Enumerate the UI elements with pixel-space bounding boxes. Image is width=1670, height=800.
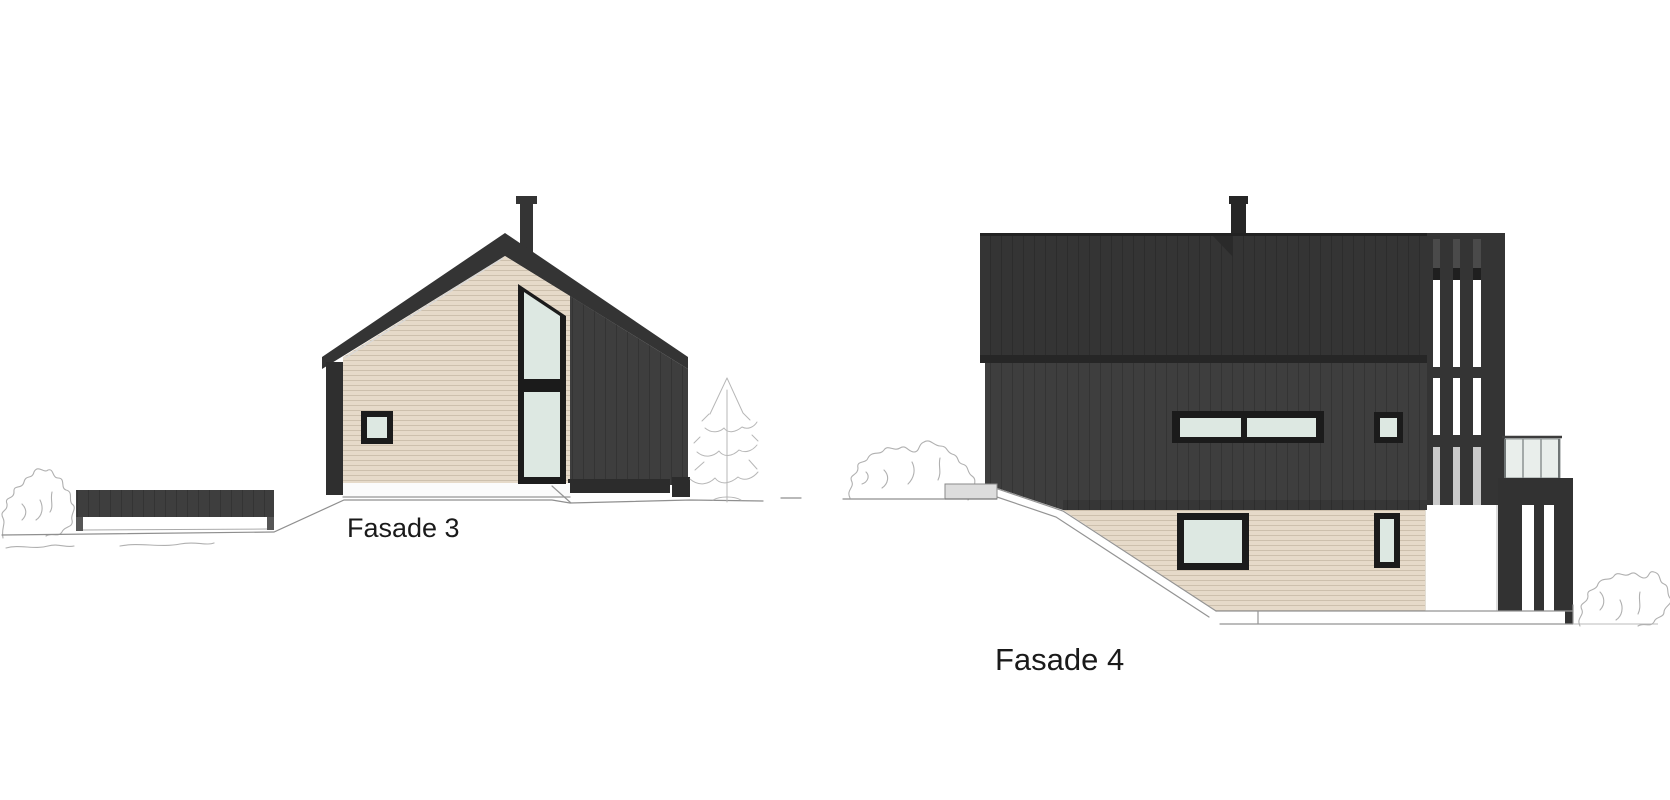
conifer-tree-sketch <box>690 378 758 502</box>
fasade3-drawing: Fasade 3 <box>2 196 763 548</box>
low-wall-post-left <box>76 517 83 531</box>
window-pane-lower <box>524 392 560 477</box>
bush-sketch-right-f4 <box>1579 572 1670 626</box>
window-pane-right <box>1247 418 1316 437</box>
narrow-basement-window <box>1374 513 1400 568</box>
side-wall-base-block <box>672 477 690 497</box>
fasade4-drawing: Fasade 4 <box>781 196 1670 677</box>
elevation-sheet: Fasade 3 <box>0 0 1670 800</box>
wall-bottom-shadow <box>1063 500 1427 510</box>
low-wall-post-right <box>267 517 274 530</box>
window-pane <box>1380 519 1394 562</box>
flat-roof-band <box>980 233 1505 363</box>
side-wall-base-strip <box>568 479 670 493</box>
recess-area <box>1425 505 1497 611</box>
fasade4-caption: Fasade 4 <box>995 642 1124 677</box>
small-square-window-f3 <box>361 411 393 444</box>
tall-gable-window <box>518 284 566 484</box>
window-pane <box>1184 520 1242 563</box>
window-pane <box>1380 418 1397 437</box>
chimney-f4 <box>1229 196 1248 234</box>
small-square-window-f4 <box>1374 412 1403 443</box>
base-ledge <box>945 484 997 499</box>
window-pane <box>367 417 387 438</box>
eave-band <box>980 355 1427 363</box>
ground-line-f4-left <box>781 498 945 499</box>
basement-window <box>1177 513 1249 570</box>
under-balcony-slats <box>1498 505 1573 624</box>
slat-footing <box>1565 611 1573 624</box>
glass-balcony-railing <box>1502 437 1562 478</box>
window-pane-left <box>1180 418 1241 437</box>
low-dark-wall <box>76 490 274 531</box>
vertical-slat-screen <box>1427 233 1505 505</box>
architectural-elevations: Fasade 3 <box>0 0 1670 800</box>
ribbon-window <box>1172 411 1324 443</box>
roof-top-edge <box>980 233 1505 236</box>
balcony-fascia <box>1498 478 1573 505</box>
corner-post <box>326 362 343 495</box>
fasade3-caption: Fasade 3 <box>347 513 460 543</box>
